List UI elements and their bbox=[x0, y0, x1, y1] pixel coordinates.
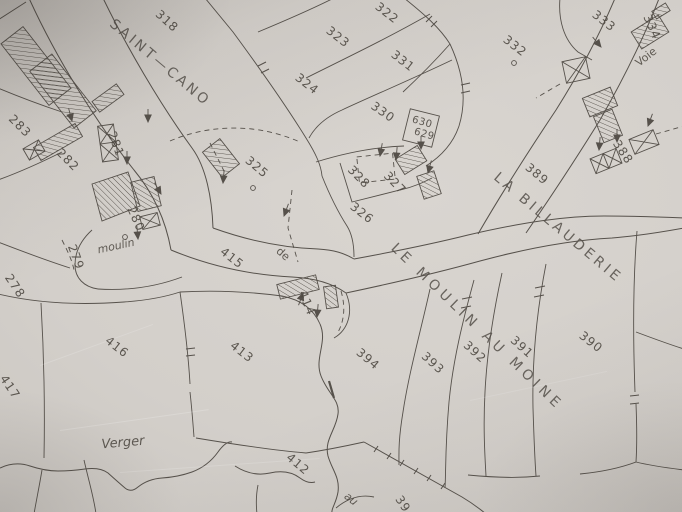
attachment-arrow bbox=[145, 109, 151, 122]
hatched-building bbox=[202, 139, 239, 178]
x-outbuilding bbox=[629, 130, 659, 155]
cadastral-map-photo: SAINT—CANOLA BILLAUDERIELE MOULIN AU MOI… bbox=[0, 0, 682, 512]
stream-line bbox=[319, 324, 338, 512]
hatched-building bbox=[417, 171, 442, 199]
double-tick-marks bbox=[186, 16, 639, 404]
hatched-building bbox=[324, 285, 339, 308]
hatched-building bbox=[395, 145, 427, 174]
embankment-tick-line bbox=[364, 442, 486, 512]
label-road-verger: Verger bbox=[101, 435, 145, 452]
attachment-arrow bbox=[645, 113, 655, 127]
x-outbuilding bbox=[562, 57, 590, 84]
hatched-building bbox=[92, 84, 124, 112]
dashed-boundaries bbox=[62, 84, 682, 334]
